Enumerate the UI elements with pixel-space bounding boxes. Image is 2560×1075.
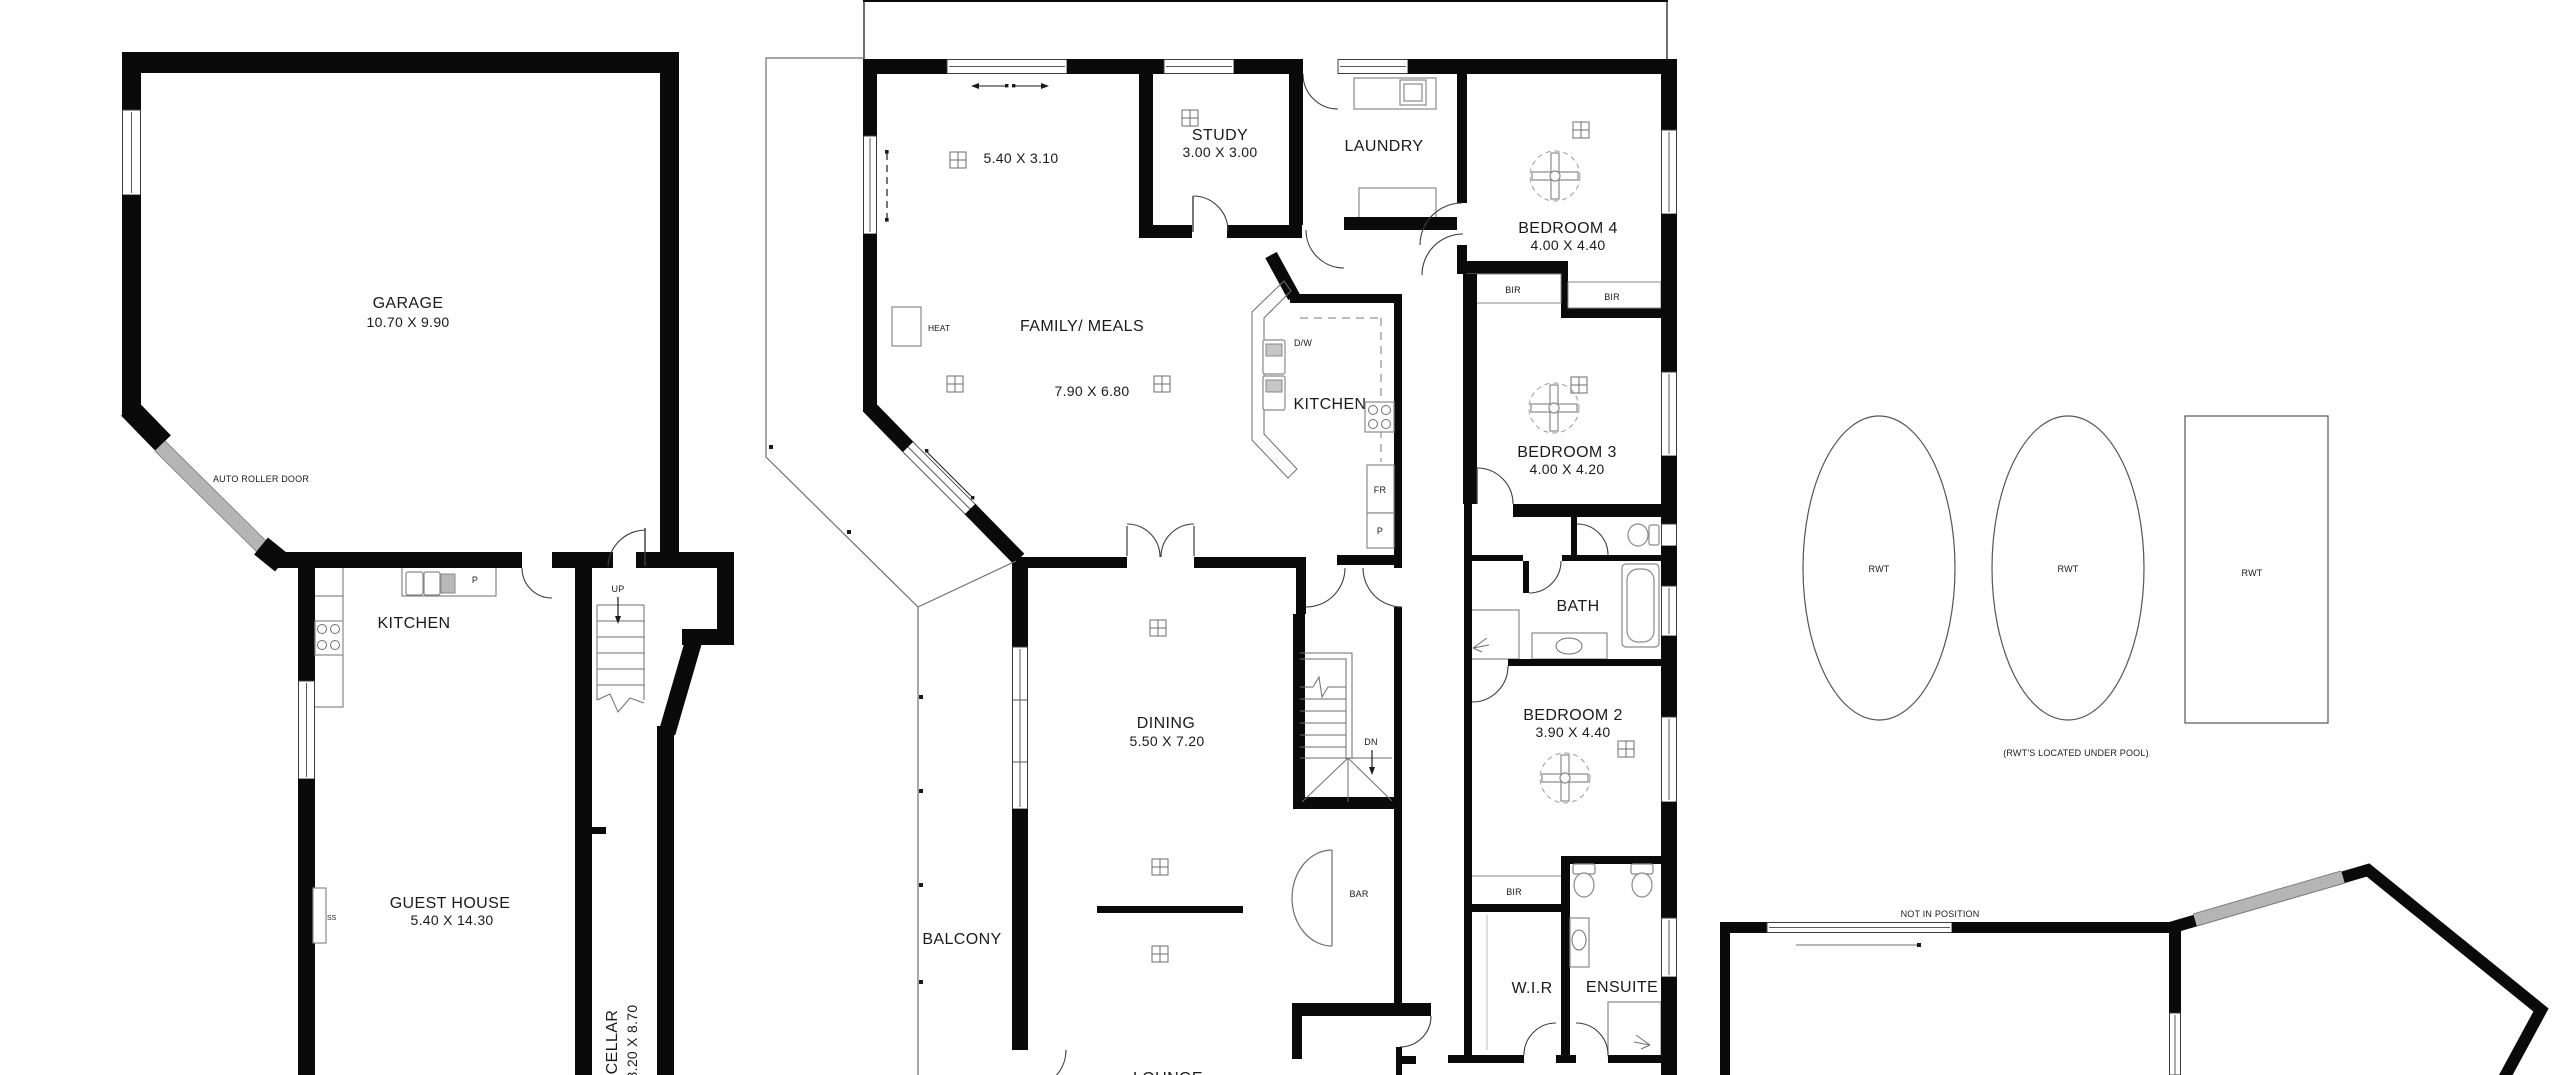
svg-text:RWT: RWT [1869,564,1890,574]
svg-text:BEDROOM 4: BEDROOM 4 [1518,220,1618,237]
svg-text:RWT: RWT [2058,564,2079,574]
svg-text:P: P [1377,526,1383,536]
svg-text:BALCONY: BALCONY [922,931,1001,948]
svg-text:CELLAR: CELLAR [604,1010,621,1075]
svg-text:3.90 X 4.40: 3.90 X 4.40 [1536,724,1611,740]
svg-text:LOUNGE: LOUNGE [1133,1070,1203,1075]
svg-text:P: P [472,575,478,585]
svg-text:RWT: RWT [2242,568,2263,578]
svg-text:5.40 X 14.30: 5.40 X 14.30 [411,912,494,928]
svg-text:DINING: DINING [1137,715,1195,732]
svg-text:BIR: BIR [1604,292,1620,302]
svg-text:5.40 X 3.10: 5.40 X 3.10 [984,150,1059,166]
svg-text:AUTO ROLLER DOOR: AUTO ROLLER DOOR [213,474,309,484]
svg-text:UP: UP [612,584,625,594]
svg-text:HEAT: HEAT [928,323,950,333]
svg-text:4.00 X 4.40: 4.00 X 4.40 [1531,237,1606,253]
svg-text:BIR: BIR [1505,285,1521,295]
svg-text:7.90 X 6.80: 7.90 X 6.80 [1055,383,1130,399]
svg-text:GUEST HOUSE: GUEST HOUSE [390,895,511,912]
svg-text:GARAGE: GARAGE [373,295,444,312]
svg-text:10.70 X 9.90: 10.70 X 9.90 [367,314,450,330]
svg-text:W.I.R: W.I.R [1511,980,1552,997]
svg-text:KITCHEN: KITCHEN [377,615,450,632]
svg-text:BEDROOM 3: BEDROOM 3 [1517,444,1617,461]
svg-text:4.00 X 4.20: 4.00 X 4.20 [1530,461,1605,477]
svg-text:SS: SS [327,915,337,922]
svg-text:KITCHEN: KITCHEN [1293,396,1366,413]
svg-text:3.00 X 3.00: 3.00 X 3.00 [1183,144,1258,160]
svg-text:BATH: BATH [1556,598,1599,615]
svg-text:(RWT'S LOCATED UNDER POOL): (RWT'S LOCATED UNDER POOL) [2003,748,2149,758]
svg-text:D/W: D/W [1294,338,1312,348]
svg-text:FR: FR [1374,485,1387,495]
svg-text:ENSUITE: ENSUITE [1586,979,1658,996]
svg-text:NOT IN POSITION: NOT IN POSITION [1901,909,1980,919]
svg-text:BAR: BAR [1349,889,1368,899]
svg-text:FAMILY/ MEALS: FAMILY/ MEALS [1020,318,1144,335]
svg-text:BIR: BIR [1506,887,1522,897]
svg-text:3.20 X 8.70: 3.20 X 8.70 [624,1005,640,1075]
svg-text:LAUNDRY: LAUNDRY [1345,138,1424,155]
svg-text:BEDROOM 2: BEDROOM 2 [1523,707,1623,724]
svg-text:DN: DN [1364,737,1377,747]
svg-text:STUDY: STUDY [1192,127,1248,144]
svg-text:5.50 X 7.20: 5.50 X 7.20 [1130,733,1205,749]
